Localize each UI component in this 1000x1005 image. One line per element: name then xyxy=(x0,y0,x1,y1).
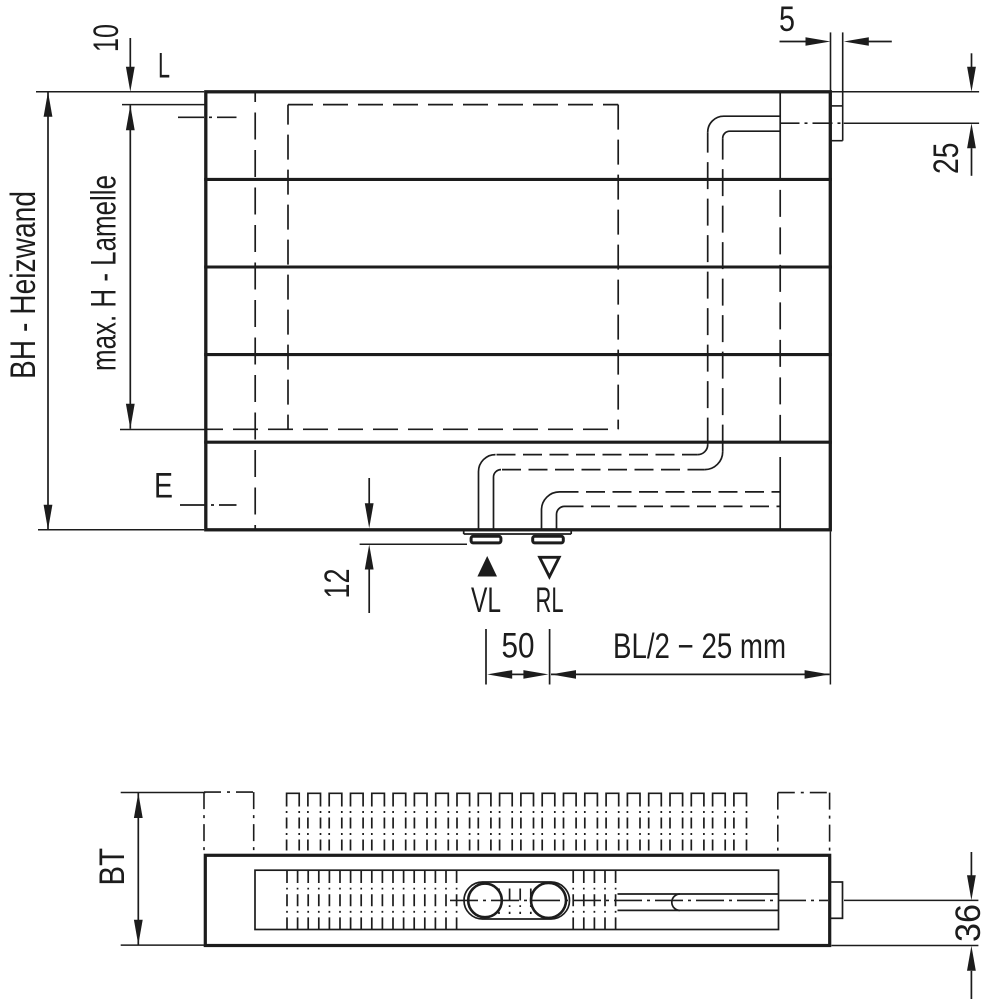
svg-text:L: L xyxy=(158,47,170,86)
svg-text:VL: VL xyxy=(471,581,501,620)
svg-text:36: 36 xyxy=(949,904,988,942)
svg-text:5: 5 xyxy=(779,0,795,39)
svg-text:BH - Heizwand: BH - Heizwand xyxy=(4,191,43,379)
svg-text:BL/2 − 25 mm: BL/2 − 25 mm xyxy=(613,627,786,666)
svg-text:10: 10 xyxy=(87,24,126,52)
svg-text:max. H - Lamelle: max. H - Lamelle xyxy=(85,175,124,371)
svg-text:12: 12 xyxy=(318,569,357,599)
svg-text:RL: RL xyxy=(536,581,564,620)
svg-text:BT: BT xyxy=(93,848,132,886)
svg-text:E: E xyxy=(154,467,173,506)
svg-text:50: 50 xyxy=(502,627,535,666)
svg-text:25: 25 xyxy=(927,143,966,175)
